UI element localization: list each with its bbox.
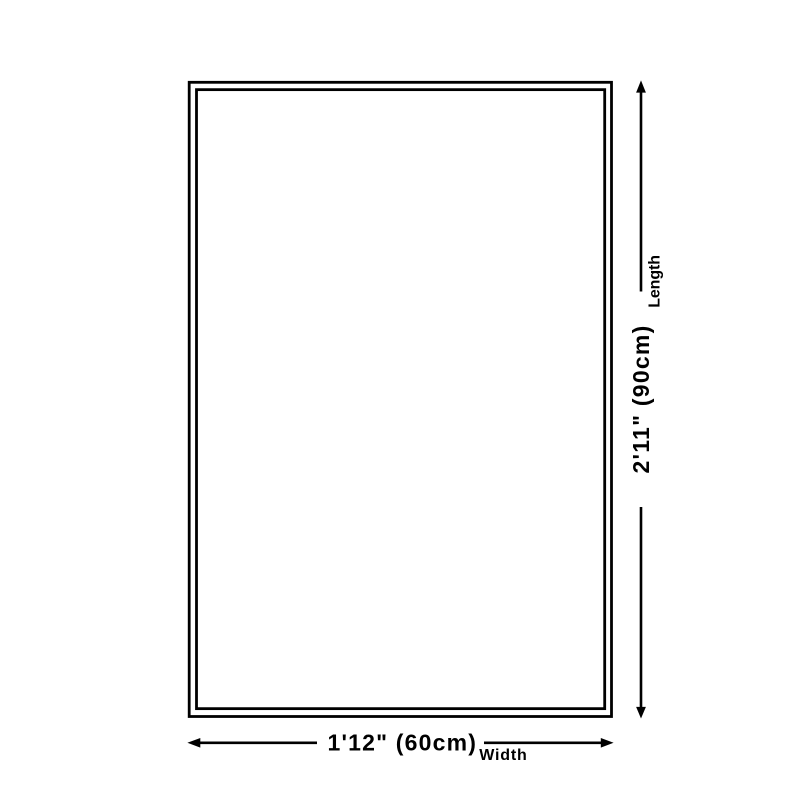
svg-text:Width: Width: [479, 747, 527, 764]
svg-text:Length: Length: [647, 255, 664, 308]
svg-text:1'12" (60cm): 1'12" (60cm): [327, 730, 477, 756]
svg-text:2'11" (90cm): 2'11" (90cm): [628, 324, 654, 473]
